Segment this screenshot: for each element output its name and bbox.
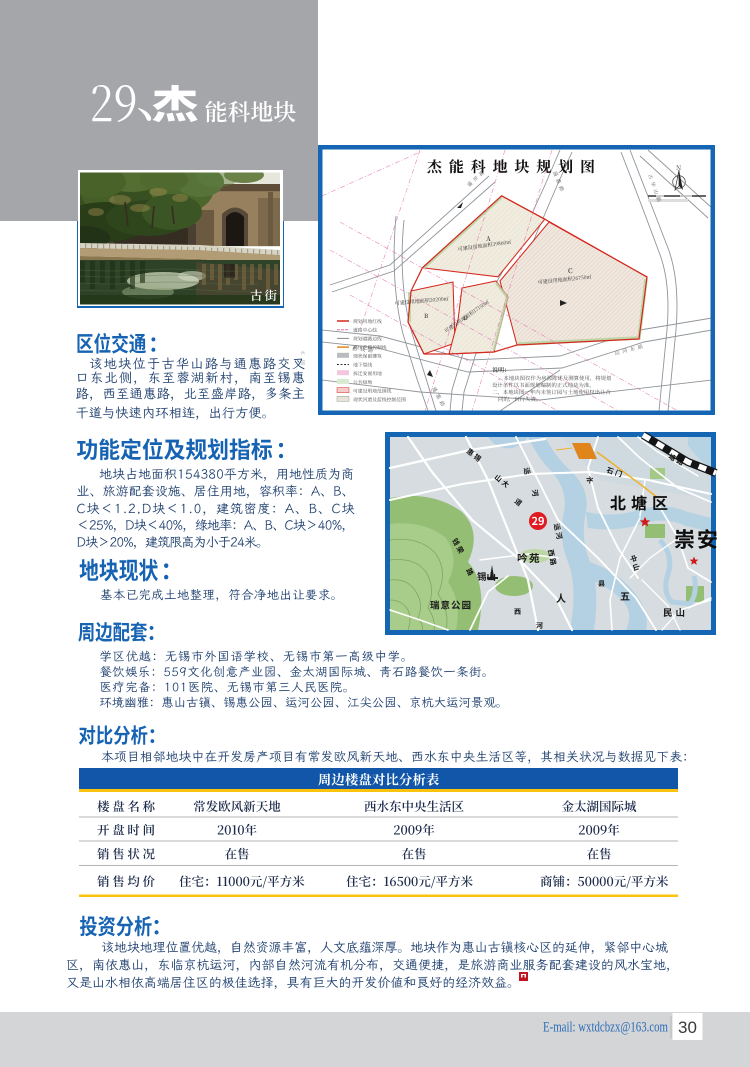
svg-text:30: 30 [678, 1018, 697, 1037]
svg-text:E-mail: wxtdcbzx@163.com: E-mail: wxtdcbzx@163.com [543, 1020, 669, 1036]
